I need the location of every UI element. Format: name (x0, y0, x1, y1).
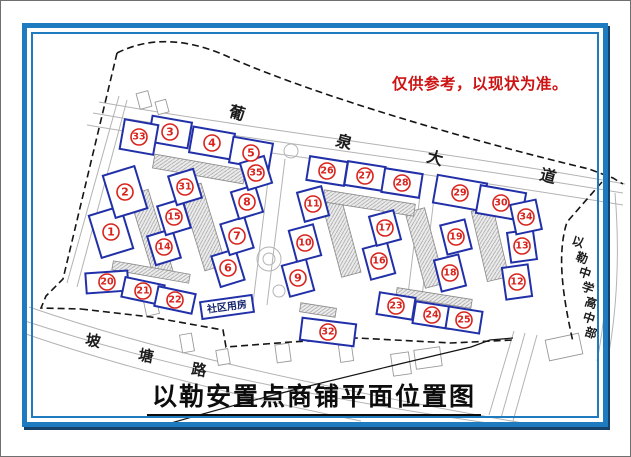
site-plan-page: 1234567891011121314151617181920212223242… (0, 0, 631, 457)
road-line (607, 193, 617, 363)
map-title: 以勒安置点商铺平面位置图 (147, 377, 481, 416)
disclaimer-text: 仅供参考，以现状为准。 (392, 72, 568, 94)
